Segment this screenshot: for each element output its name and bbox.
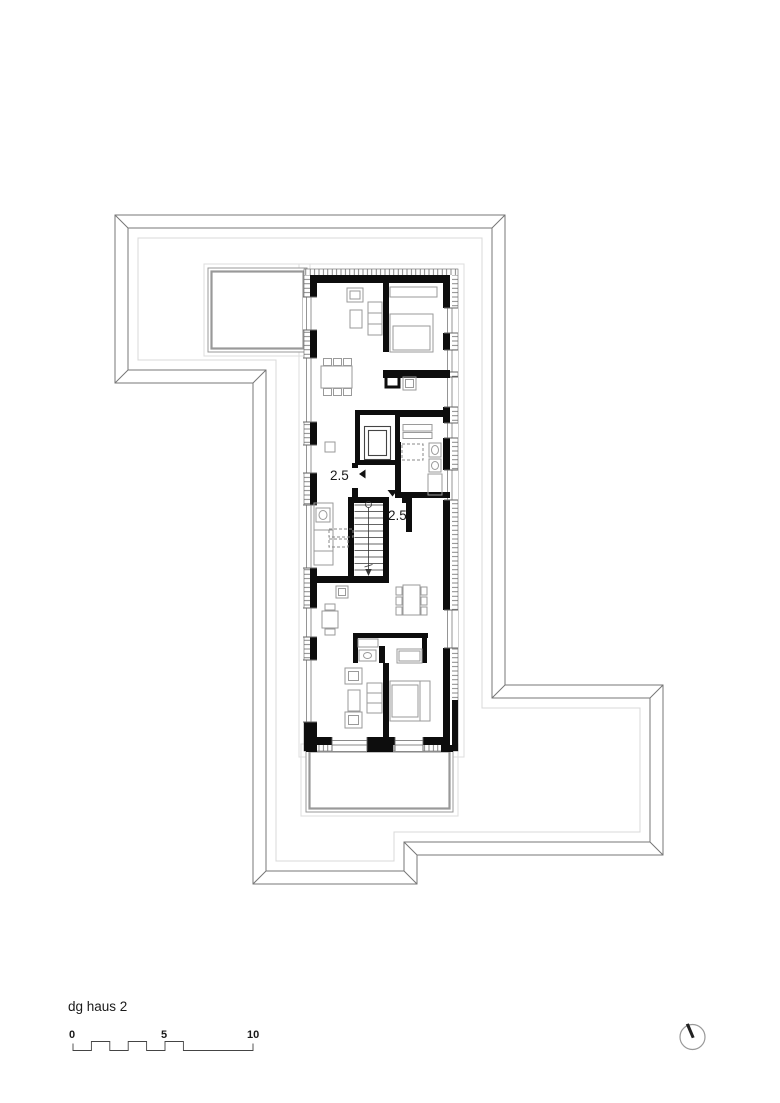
elevator bbox=[358, 413, 398, 463]
scale-tick-5: 5 bbox=[161, 1029, 167, 1041]
unit-label-upper: 2.5 bbox=[330, 468, 349, 483]
terrace-lower bbox=[306, 748, 453, 812]
unit-label-lower: 2.5 bbox=[388, 508, 407, 523]
floor-plan-sheet: 2.5 2.5 dg haus 2 0 5 10 bbox=[0, 0, 780, 1103]
scale-tick-10: 10 bbox=[247, 1029, 259, 1041]
scale-bar: 0 5 10 bbox=[69, 1029, 259, 1051]
building-footprint bbox=[304, 269, 458, 751]
plan-drawing: 2.5 2.5 dg haus 2 0 5 10 bbox=[0, 0, 780, 1103]
building: 2.5 2.5 bbox=[303, 269, 458, 752]
north-arrow-icon bbox=[680, 1023, 705, 1049]
terrace-upper bbox=[208, 268, 307, 352]
scale-tick-0: 0 bbox=[69, 1029, 75, 1041]
drawing-title: dg haus 2 bbox=[68, 999, 127, 1014]
